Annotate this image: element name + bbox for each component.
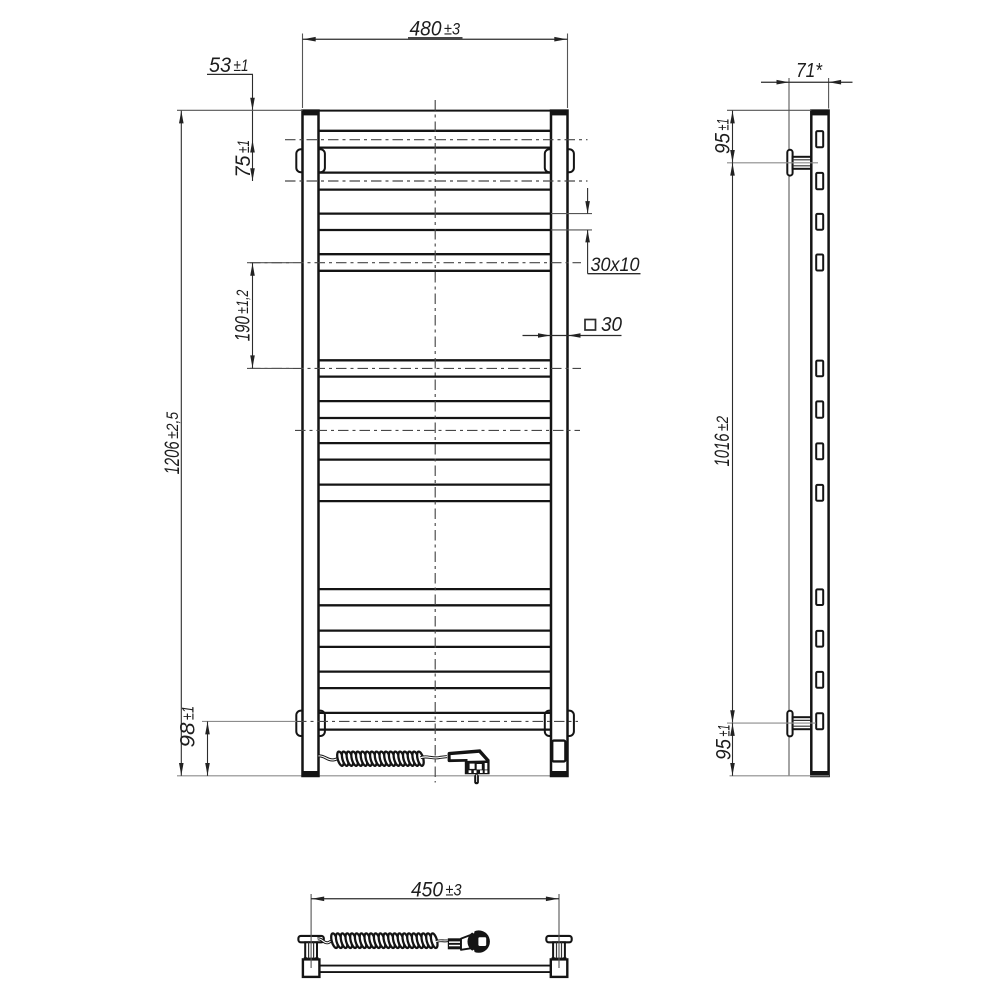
- svg-text:1206: 1206: [160, 441, 184, 474]
- svg-text:±1: ±1: [714, 725, 733, 737]
- svg-text:±3: ±3: [444, 19, 460, 38]
- svg-text:190: 190: [230, 316, 254, 341]
- svg-text:30x10: 30x10: [591, 254, 640, 276]
- svg-text:±1: ±1: [713, 119, 732, 131]
- svg-text:95: 95: [712, 738, 736, 760]
- svg-text:±1: ±1: [178, 706, 197, 720]
- svg-text:480: 480: [410, 17, 442, 41]
- svg-text:30: 30: [601, 313, 623, 336]
- svg-text:53: 53: [209, 53, 231, 77]
- svg-text:±3: ±3: [446, 880, 462, 899]
- svg-text:1016: 1016: [710, 433, 734, 466]
- svg-text:±1: ±1: [234, 140, 253, 153]
- svg-text:95: 95: [711, 132, 735, 154]
- svg-text:±1: ±1: [234, 56, 249, 75]
- svg-text:71*: 71*: [796, 59, 823, 82]
- svg-text:75: 75: [231, 155, 255, 178]
- svg-text:±1,2: ±1,2: [233, 289, 252, 313]
- svg-text:±2,5: ±2,5: [163, 411, 182, 438]
- svg-text:450: 450: [411, 878, 443, 902]
- svg-text:98: 98: [176, 722, 200, 747]
- svg-text:±2: ±2: [713, 416, 732, 431]
